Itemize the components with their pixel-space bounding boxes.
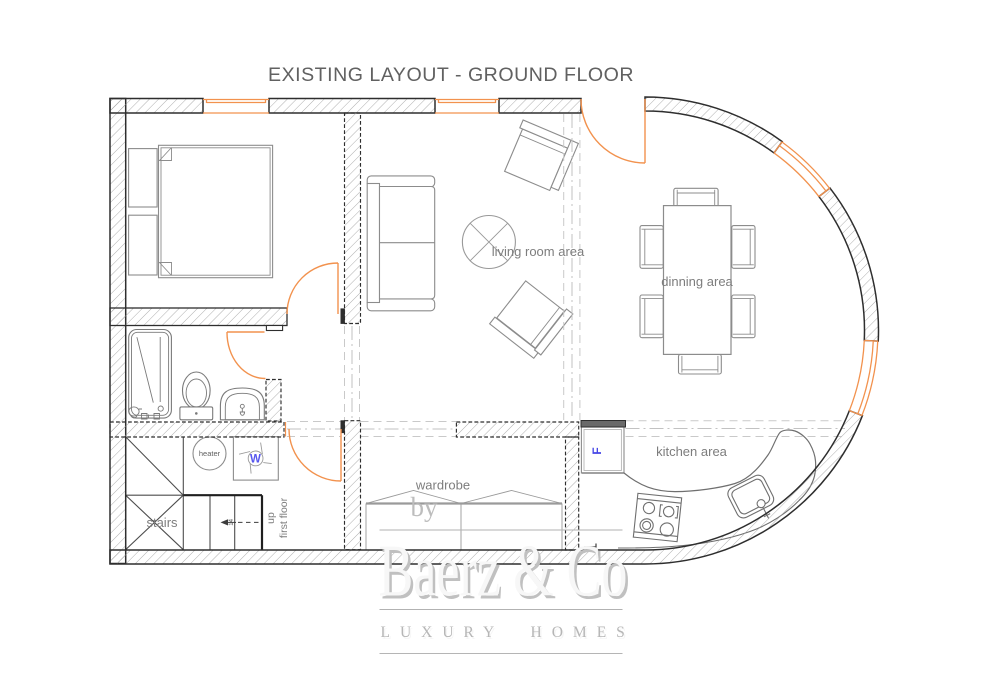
svg-text:dinning area: dinning area [661,274,733,289]
svg-text:kitchen area: kitchen area [656,444,728,459]
svg-text:F: F [590,447,604,454]
svg-text:first floor: first floor [278,497,290,538]
svg-text:by: by [411,492,439,522]
svg-text:living room area: living room area [492,244,585,259]
svg-text:Baerz & Co: Baerz & Co [379,531,628,613]
svg-text:EXISTING LAYOUT - GROUND FLOO: EXISTING LAYOUT - GROUND FLOOR [268,64,634,86]
svg-text:stairs: stairs [146,515,178,530]
svg-text:LUXURY HOMES: LUXURY HOMES [381,624,635,641]
svg-text:up: up [265,512,277,524]
svg-text:heater: heater [199,449,221,458]
svg-text:14: 14 [229,518,235,525]
svg-text:W: W [250,454,261,466]
svg-text:wardrobe: wardrobe [415,478,470,493]
